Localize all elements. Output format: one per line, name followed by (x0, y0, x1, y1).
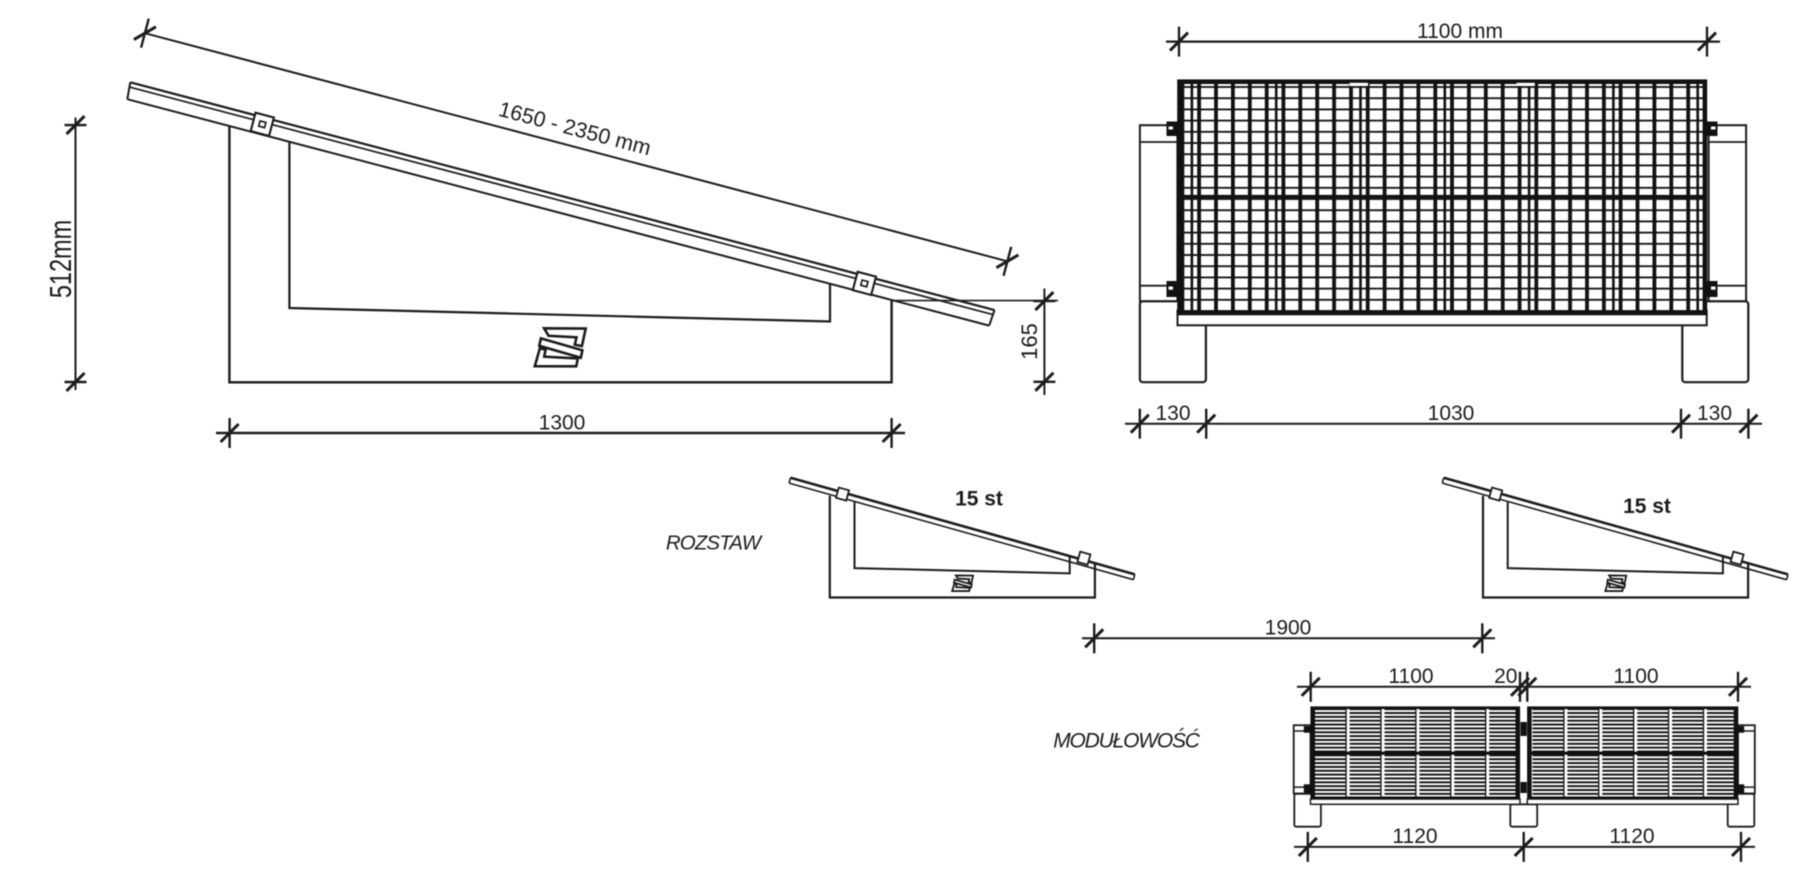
svg-text:MODUŁOWOŚĆ: MODUŁOWOŚĆ (1053, 729, 1201, 753)
svg-text:15 st: 15 st (1623, 495, 1671, 518)
svg-text:1100 mm: 1100 mm (1417, 20, 1503, 43)
svg-text:165: 165 (1017, 323, 1042, 360)
svg-text:1120: 1120 (1609, 825, 1654, 848)
svg-text:130: 130 (1697, 402, 1732, 425)
svg-text:1300: 1300 (539, 412, 586, 435)
svg-text:130: 130 (1155, 402, 1190, 425)
svg-text:20: 20 (1494, 665, 1517, 688)
svg-text:ROZSTAW: ROZSTAW (666, 532, 763, 555)
svg-text:1100: 1100 (1613, 665, 1658, 688)
svg-text:1030: 1030 (1428, 402, 1475, 425)
svg-text:1900: 1900 (1265, 617, 1312, 640)
svg-text:1100: 1100 (1388, 665, 1433, 688)
svg-text:512mm: 512mm (43, 220, 78, 298)
svg-text:1120: 1120 (1392, 825, 1437, 848)
svg-text:15 st: 15 st (955, 487, 1003, 510)
